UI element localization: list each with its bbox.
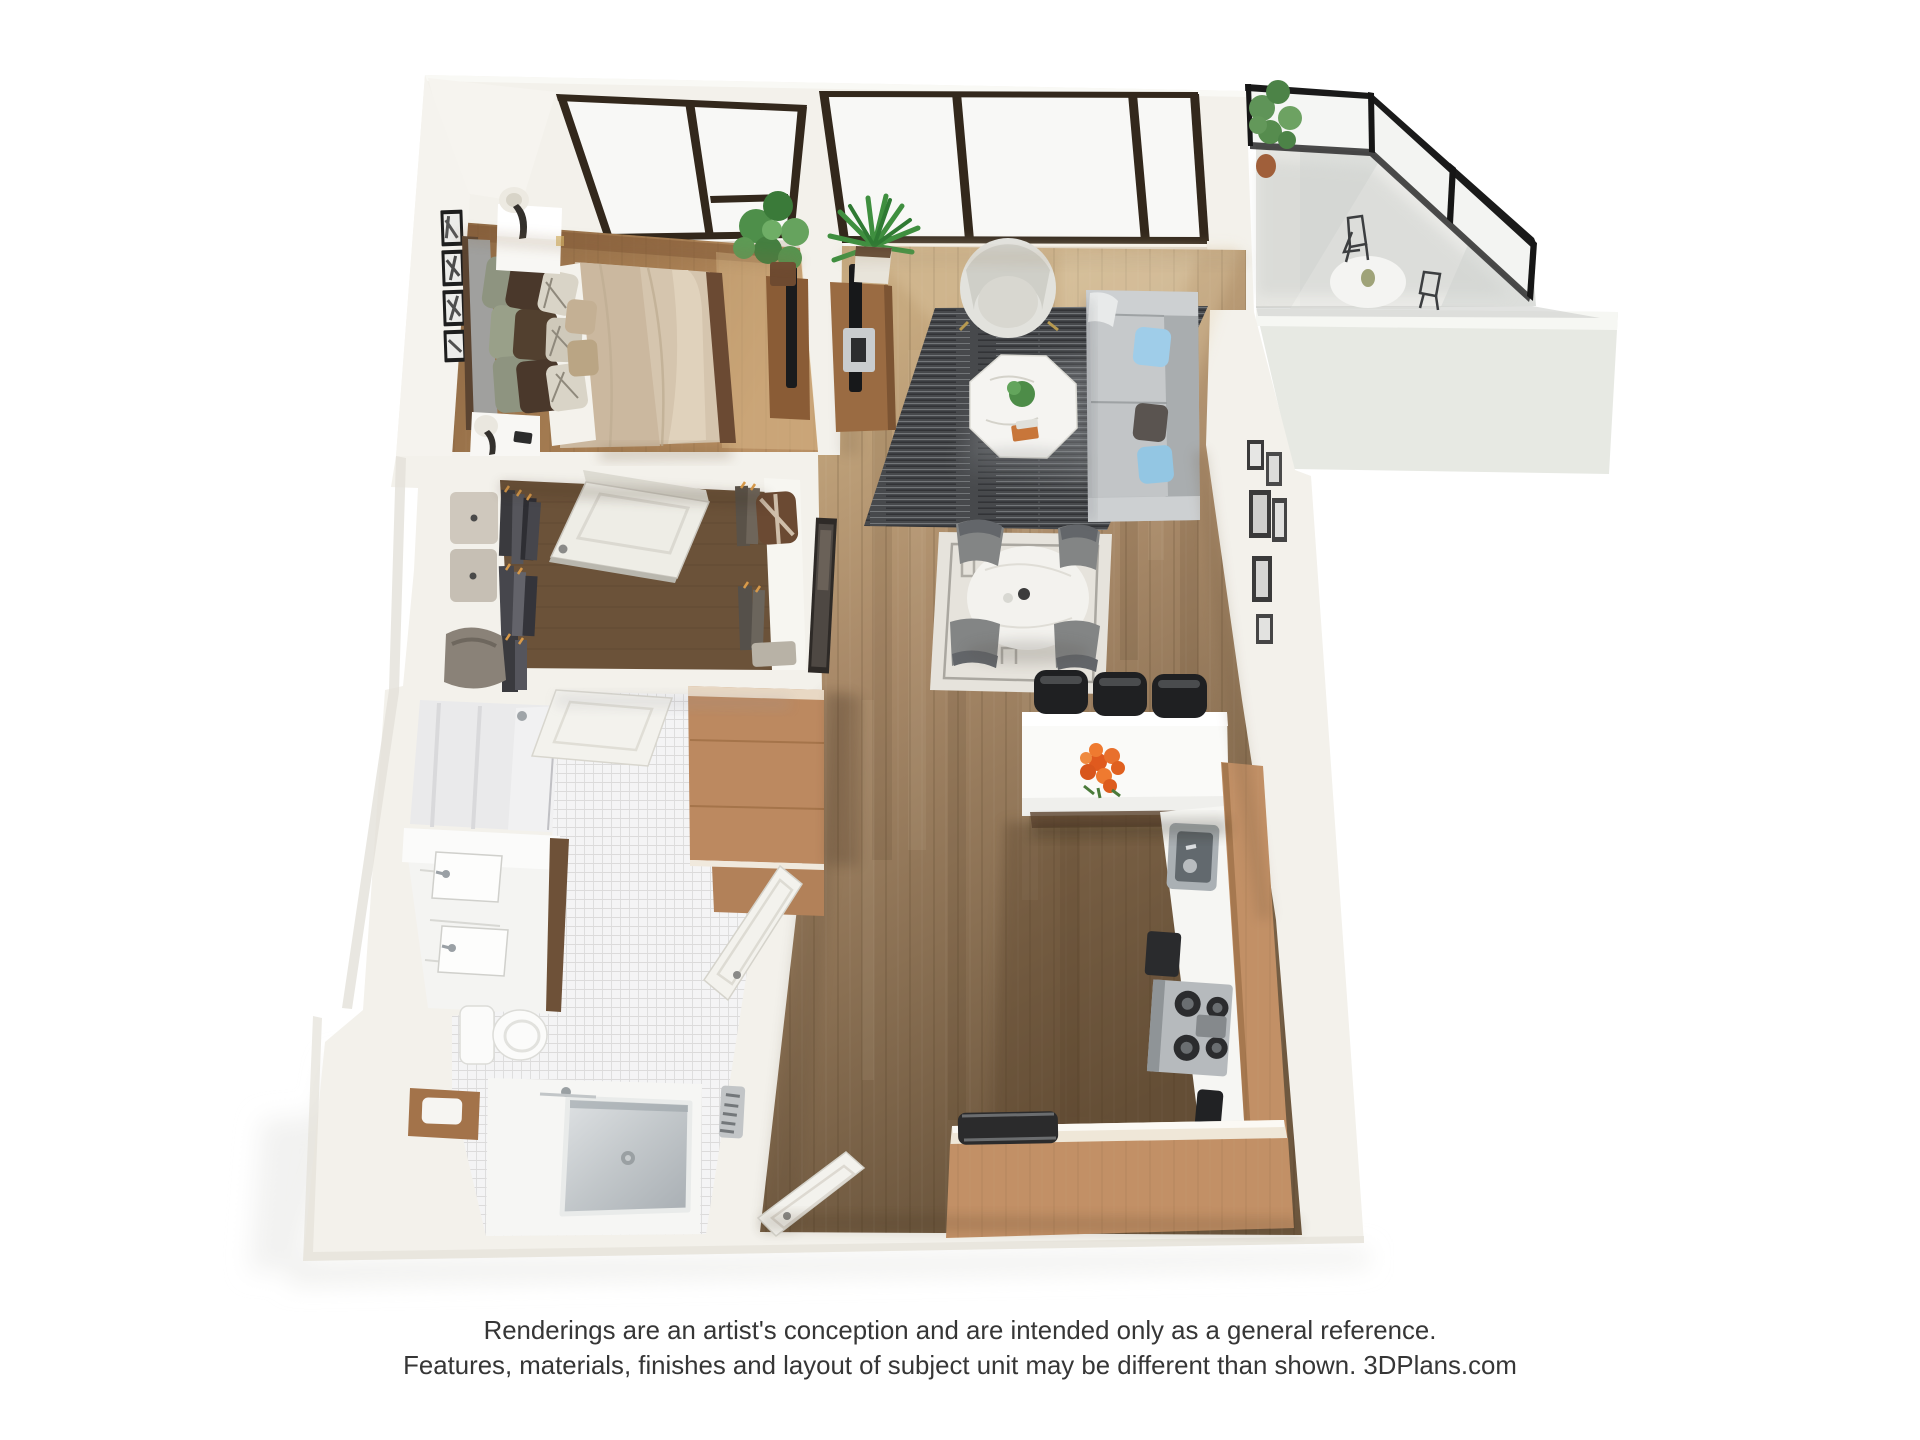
svg-text:Renderings are an artist's con: Renderings are an artist's conception an…	[484, 1317, 1437, 1345]
svg-text:Features, materials, finishes: Features, materials, finishes and layout…	[403, 1352, 1517, 1380]
